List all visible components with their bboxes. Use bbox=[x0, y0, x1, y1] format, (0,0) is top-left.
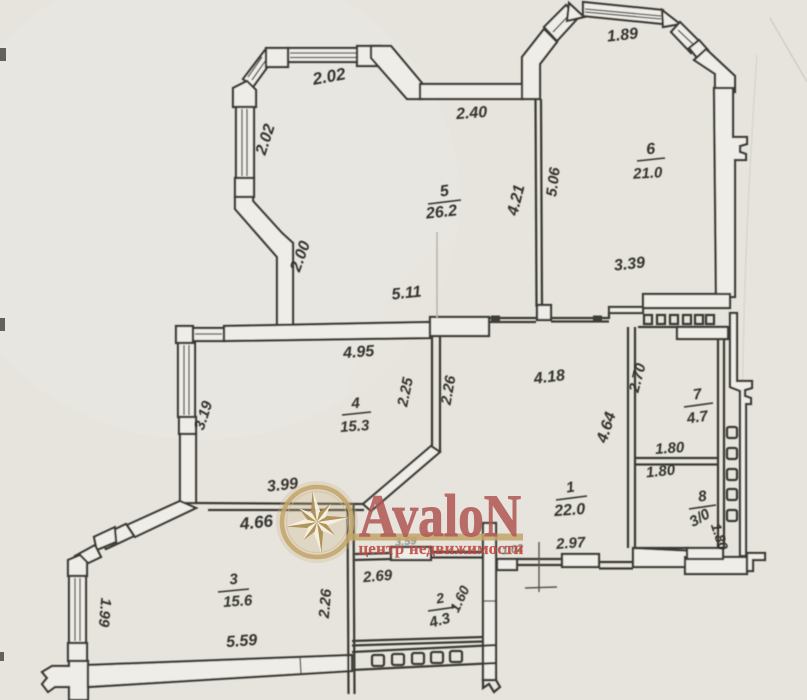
svg-text:5.06: 5.06 bbox=[543, 166, 564, 198]
svg-text:2.40: 2.40 bbox=[455, 104, 488, 123]
svg-text:1.99: 1.99 bbox=[95, 597, 115, 628]
svg-text:26.2: 26.2 bbox=[424, 202, 458, 222]
svg-text:1.89: 1.89 bbox=[606, 25, 639, 45]
svg-text:15.6: 15.6 bbox=[223, 592, 254, 611]
svg-text:6: 6 bbox=[645, 141, 655, 159]
svg-text:центр недвижимости: центр недвижимости bbox=[358, 539, 523, 558]
svg-text:1.80: 1.80 bbox=[645, 461, 676, 481]
svg-text:4.7: 4.7 bbox=[685, 408, 710, 428]
svg-text:4.66: 4.66 bbox=[238, 511, 274, 534]
svg-text:5.11: 5.11 bbox=[391, 283, 423, 303]
svg-text:5.59: 5.59 bbox=[226, 632, 258, 651]
svg-text:2.26: 2.26 bbox=[316, 588, 336, 620]
svg-text:3.39: 3.39 bbox=[613, 254, 646, 274]
svg-text:22.0: 22.0 bbox=[553, 501, 586, 520]
svg-text:2.69: 2.69 bbox=[361, 567, 393, 587]
svg-text:21.0: 21.0 bbox=[632, 164, 664, 183]
svg-text:1.80: 1.80 bbox=[655, 439, 686, 458]
svg-text:4.95: 4.95 bbox=[342, 343, 376, 362]
svg-text:2.97: 2.97 bbox=[555, 534, 587, 553]
svg-text:15.3: 15.3 bbox=[340, 417, 371, 436]
